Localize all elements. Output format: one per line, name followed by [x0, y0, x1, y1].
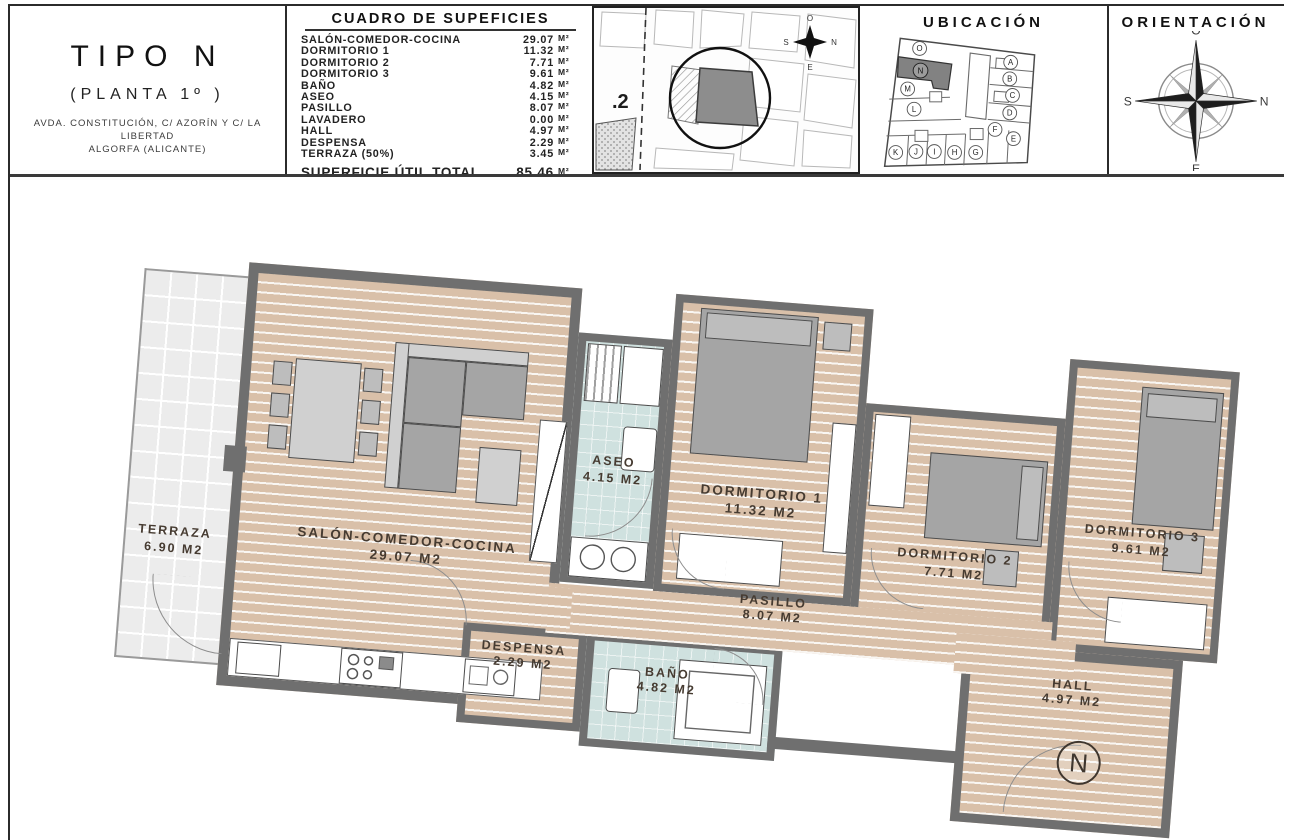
unit-badge: A [1003, 55, 1017, 69]
site-highlighted-plot [696, 68, 758, 126]
svg-text:C: C [1009, 91, 1015, 100]
ubicacion-panel: UBICACIÓN [860, 6, 1109, 174]
unit-badge: O [912, 42, 926, 56]
compass-south-label: S [1123, 95, 1131, 109]
header-band: TIPO N (PLANTA 1º ) AVDA. CONSTITUCIÓN, … [10, 6, 1284, 177]
unit-badge: D [1002, 106, 1016, 120]
ubicacion-title: UBICACIÓN [860, 14, 1107, 31]
table-total-row: SUPERFICIE ÚTIL TOTAL85.46M² [301, 166, 580, 174]
coffee-table [475, 447, 521, 506]
unit-badge: I [927, 145, 941, 159]
svg-text:N: N [917, 66, 923, 75]
unit-badge: K [888, 146, 902, 160]
svg-text:M: M [904, 85, 911, 94]
svg-text:E: E [807, 63, 812, 72]
unit-badge: B [1002, 72, 1016, 86]
title-block: TIPO N (PLANTA 1º ) AVDA. CONSTITUCIÓN, … [10, 6, 287, 174]
shower-tray [584, 343, 622, 403]
plan-type-title: TIPO N [10, 40, 285, 74]
svg-text:O: O [807, 14, 813, 23]
svg-text:D: D [1006, 109, 1012, 118]
svg-text:S: S [783, 38, 788, 47]
unit-badge-highlighted: N [913, 63, 928, 78]
unit-badge: M [900, 82, 914, 96]
svg-text:G: G [972, 148, 978, 157]
unit-badge: L [907, 102, 921, 116]
svg-text:H: H [951, 148, 957, 157]
unit-badge: J [909, 145, 923, 159]
svg-text:A: A [1008, 58, 1014, 67]
unit-badge: C [1005, 89, 1019, 103]
table-row: HALL4.97M² [301, 126, 580, 137]
compass-west-label: O [1191, 31, 1200, 38]
svg-text:L: L [911, 105, 916, 114]
site-plan-panel: .2 O N S E [592, 6, 860, 174]
plan-floor-subtitle: (PLANTA 1º ) [10, 86, 285, 104]
site-plan-map: .2 O N S E [594, 8, 858, 172]
terraza-pillar [223, 445, 247, 473]
svg-text:E: E [1010, 134, 1015, 143]
svg-text:J: J [913, 147, 917, 156]
svg-text:K: K [893, 148, 899, 157]
surface-table-title: CUADRO DE SUPEFICIES [305, 11, 576, 31]
salon-pasillo-opening [534, 586, 573, 631]
table-row: TERRAZA (50%)3.45M² [301, 149, 580, 160]
compass-east-label: E [1191, 162, 1199, 171]
unit-badge: H [947, 146, 961, 160]
shower-plate [619, 346, 663, 407]
unit-badge: G [968, 146, 982, 160]
stove-burners-icon [340, 649, 401, 687]
surface-table: CUADRO DE SUPEFICIES SALÓN-COMEDOR-COCIN… [287, 6, 594, 174]
address-line-1: AVDA. CONSTITUCIÓN, C/ AZORÍN Y C/ LA LI… [14, 117, 281, 143]
address-line-2: ALGORFA (ALICANTE) [14, 143, 281, 156]
svg-text:I: I [933, 147, 935, 156]
svg-text:O: O [916, 44, 922, 53]
ubicacion-block-diagram: O N M L A B C D E F G H I J K [869, 31, 1099, 169]
svg-text:N: N [831, 38, 837, 47]
floor-plan-sheet: TIPO N (PLANTA 1º ) AVDA. CONSTITUCIÓN, … [0, 0, 1290, 840]
aseo-sink-counter [568, 536, 649, 582]
table-row: DORMITORIO 39.61M² [301, 69, 580, 80]
project-address: AVDA. CONSTITUCIÓN, C/ AZORÍN Y C/ LA LI… [14, 117, 281, 156]
svg-text:B: B [1007, 75, 1012, 84]
fridge [235, 642, 281, 677]
unit-badge: E [1006, 132, 1020, 146]
compass-rose-icon: O N S E [1121, 31, 1271, 171]
orientacion-title: ORIENTACIÓN [1107, 14, 1284, 31]
wardrobe-dormitorio-2 [868, 414, 911, 509]
unit-badge: F [988, 123, 1002, 137]
nightstand [822, 322, 852, 352]
orientacion-panel: ORIENTACIÓN [1107, 6, 1284, 174]
stove [339, 648, 404, 689]
svg-text:F: F [992, 125, 997, 134]
compass-north-label: N [1259, 95, 1268, 109]
exterior-wall-segment [767, 736, 963, 763]
dining-table [288, 358, 362, 463]
floor-plan: N TERRAZA6.90 M2 SALÓN-COMEDOR-COCINA29.… [104, 238, 1247, 840]
site-plot-label: .2 [612, 91, 629, 113]
